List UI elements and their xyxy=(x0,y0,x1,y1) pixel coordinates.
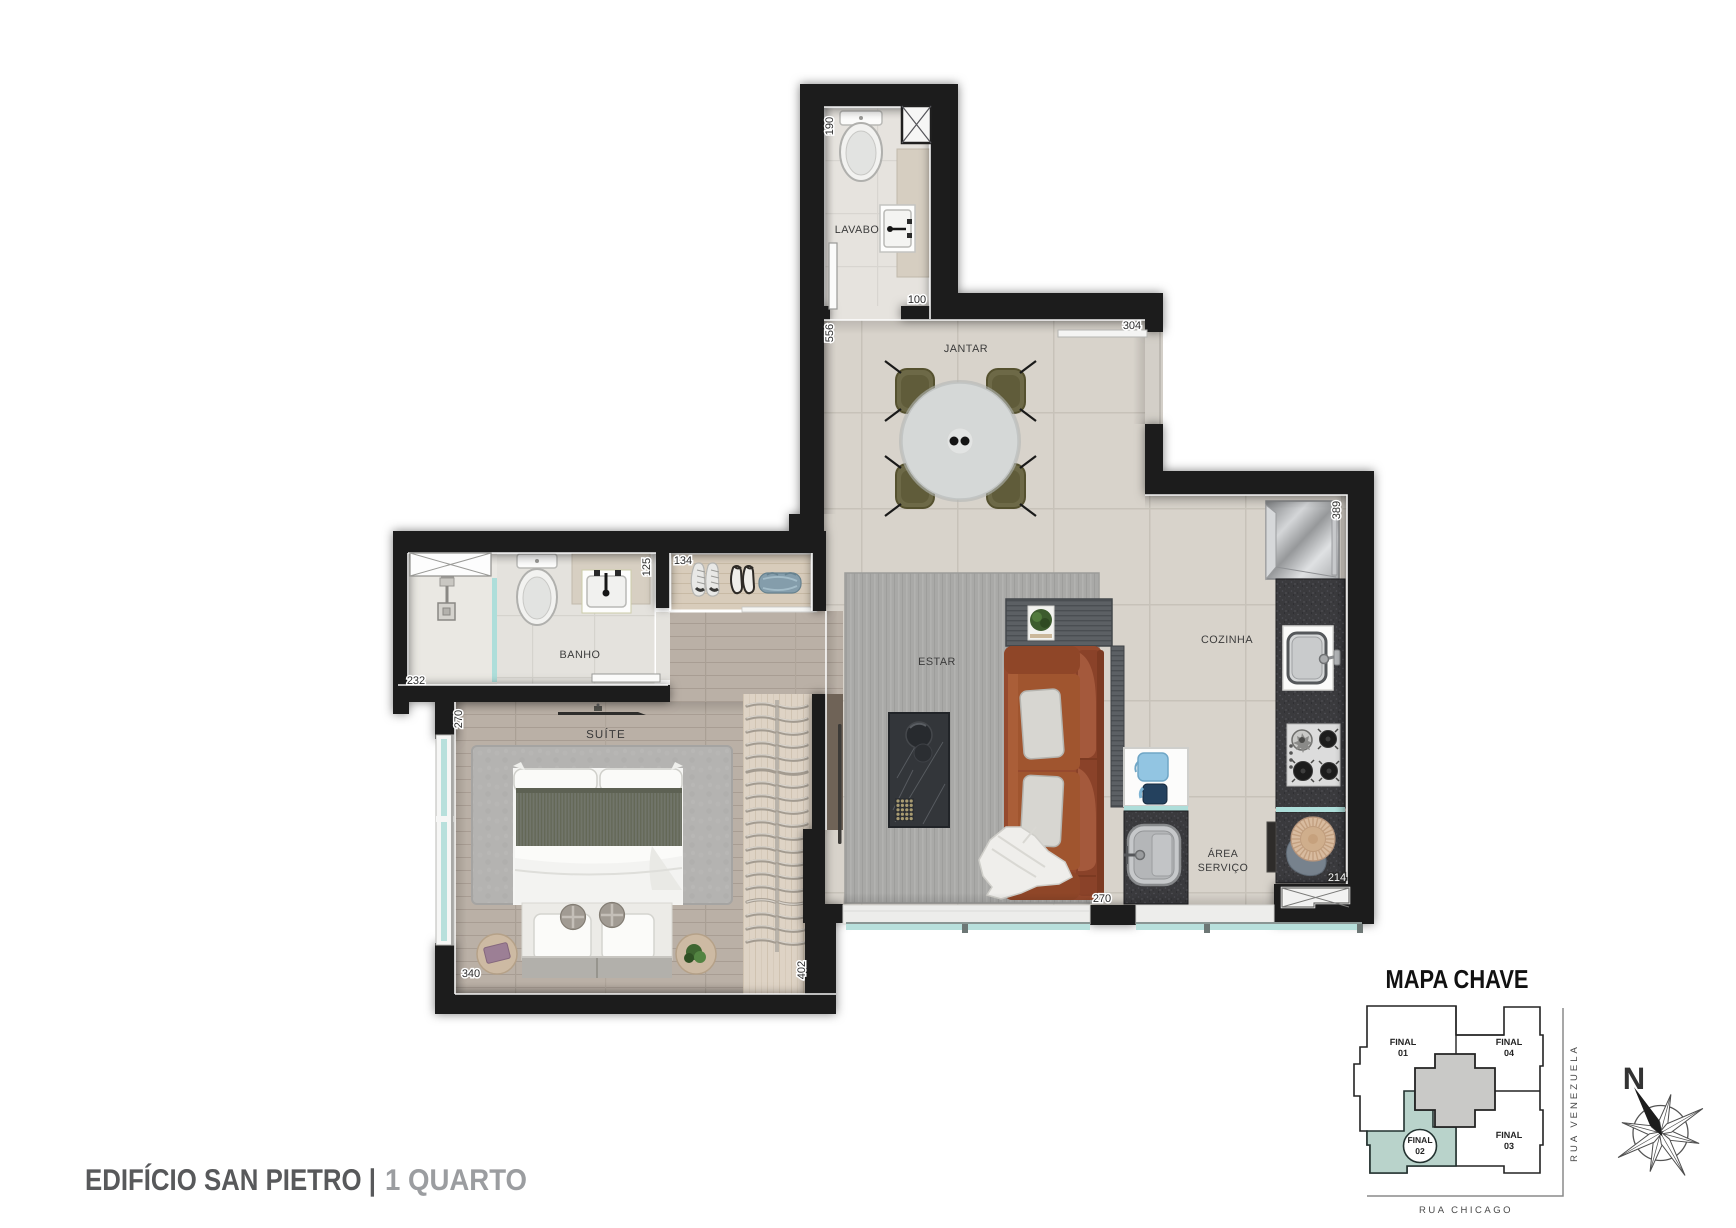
svg-text:232: 232 xyxy=(407,675,425,687)
svg-text:SERVIÇO: SERVIÇO xyxy=(1198,862,1249,874)
svg-text:LAVABO: LAVABO xyxy=(835,224,880,236)
svg-text:556: 556 xyxy=(824,324,836,342)
svg-text:COZINHA: COZINHA xyxy=(1201,634,1253,646)
svg-text:RUA CHICAGO: RUA CHICAGO xyxy=(1419,1205,1513,1216)
svg-text:1 QUARTO: 1 QUARTO xyxy=(385,1164,527,1197)
svg-text:389: 389 xyxy=(1331,501,1343,519)
svg-text:SUÍTE: SUÍTE xyxy=(586,728,626,741)
svg-text:134: 134 xyxy=(674,555,692,567)
svg-text:BANHO: BANHO xyxy=(560,649,601,661)
svg-text:MAPA CHAVE: MAPA CHAVE xyxy=(1386,964,1529,994)
svg-text:270: 270 xyxy=(1093,893,1111,905)
svg-text:214: 214 xyxy=(1328,872,1346,884)
svg-text:FINAL: FINAL xyxy=(1407,1135,1432,1145)
svg-text:01: 01 xyxy=(1398,1048,1408,1058)
svg-text:FINAL: FINAL xyxy=(1390,1037,1417,1047)
svg-text:190: 190 xyxy=(824,117,836,135)
svg-text:304: 304 xyxy=(1123,320,1141,332)
svg-text:270: 270 xyxy=(453,710,465,728)
svg-text:JANTAR: JANTAR xyxy=(944,343,988,355)
svg-text:N: N xyxy=(1623,1061,1645,1096)
svg-text:04: 04 xyxy=(1504,1048,1514,1058)
svg-text:FINAL: FINAL xyxy=(1496,1037,1523,1047)
svg-text:03: 03 xyxy=(1504,1141,1514,1151)
svg-text:125: 125 xyxy=(641,558,653,576)
svg-text:EDIFÍCIO SAN PIETRO |: EDIFÍCIO SAN PIETRO | xyxy=(85,1163,376,1197)
svg-text:402: 402 xyxy=(796,961,808,979)
svg-text:FINAL: FINAL xyxy=(1496,1130,1523,1140)
svg-text:ÁREA: ÁREA xyxy=(1208,847,1239,860)
svg-text:100: 100 xyxy=(908,294,926,306)
svg-text:02: 02 xyxy=(1415,1146,1425,1156)
svg-text:RUA VENEZUELA: RUA VENEZUELA xyxy=(1569,1044,1580,1162)
svg-text:ESTAR: ESTAR xyxy=(918,656,956,668)
svg-text:340: 340 xyxy=(462,968,480,980)
